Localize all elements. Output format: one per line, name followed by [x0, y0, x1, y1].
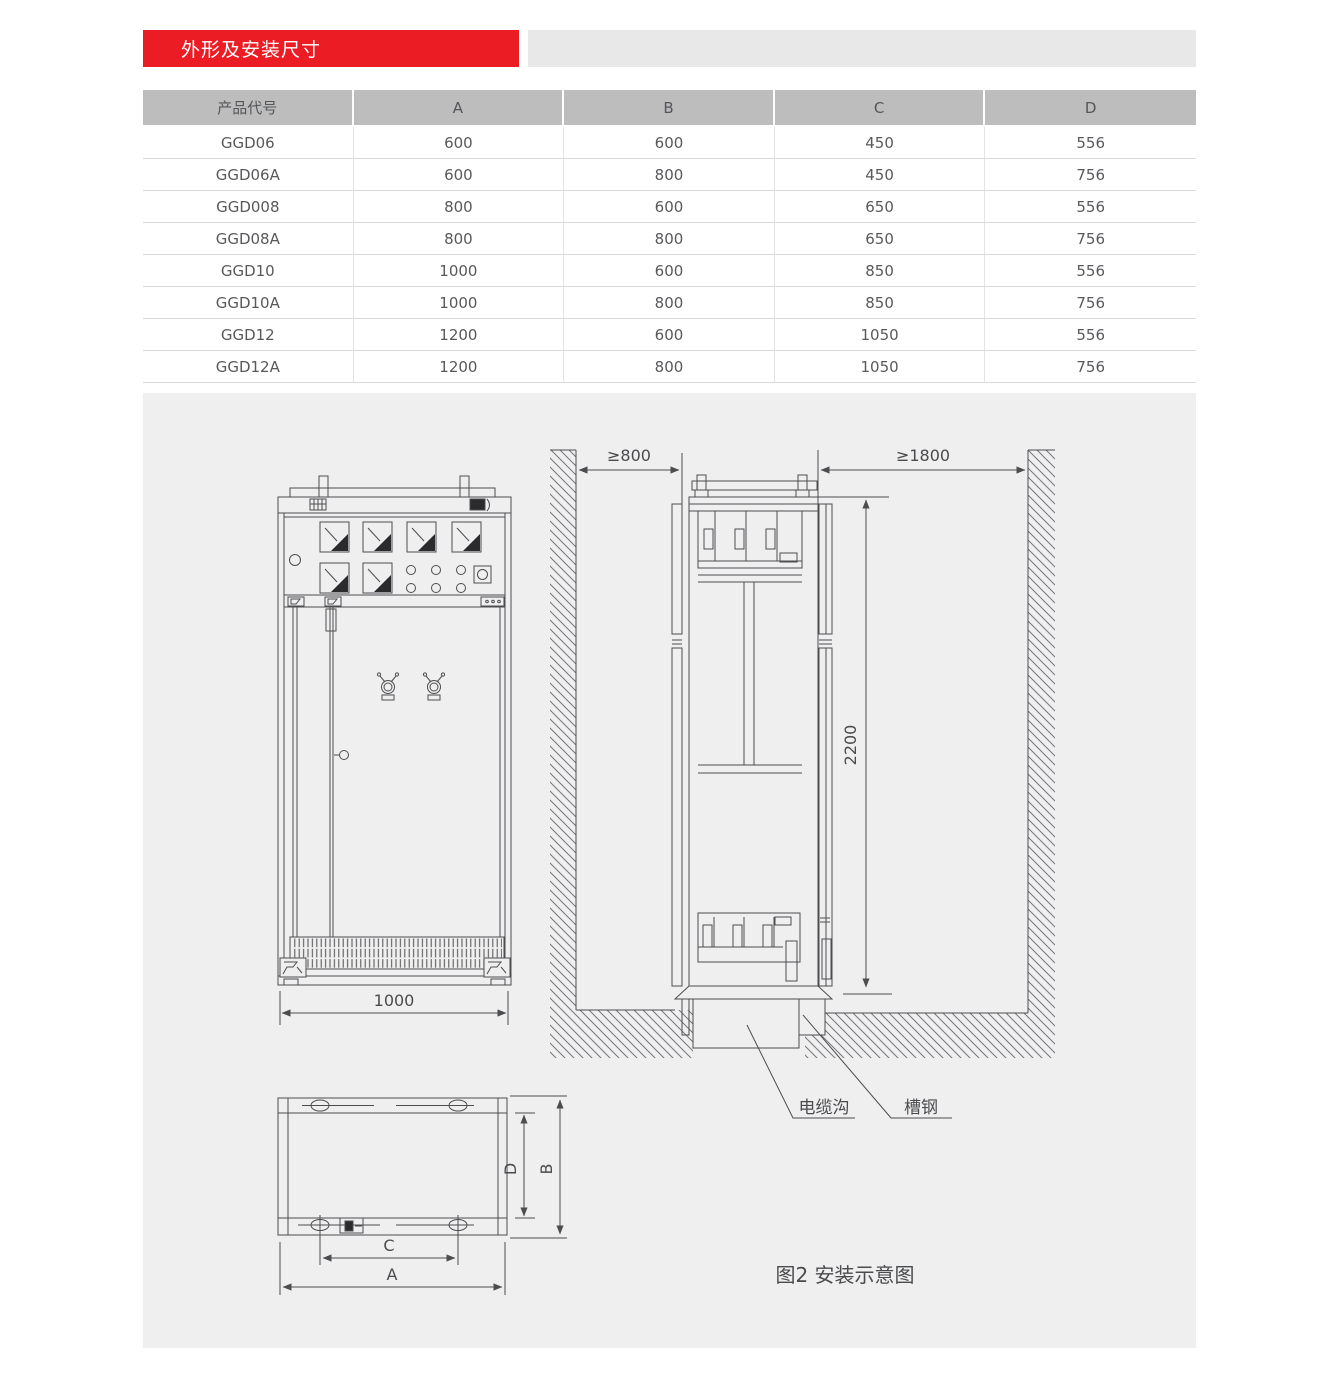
rear-door-edge: [819, 504, 832, 986]
column-header: B: [564, 90, 775, 127]
table-row: GGD12A12008001050756: [143, 351, 1196, 383]
wall-left: [550, 450, 576, 1010]
instrument-panel: [284, 517, 505, 595]
busbar-compartment-bottom: [698, 913, 831, 981]
figure-caption: 图2 安装示意图: [775, 1263, 914, 1287]
label-cable-trench: 电缆沟: [799, 1098, 850, 1118]
wall-right: [1028, 450, 1055, 1013]
plan-view: D B C A: [278, 1096, 567, 1295]
dimension-800: ≥800: [579, 446, 682, 504]
dimension-c: C: [320, 1215, 458, 1265]
column-header: D: [985, 90, 1196, 127]
push-button: [474, 566, 491, 583]
table-row: GGD08A800800650756: [143, 223, 1196, 255]
table-row: GGD06A600800450756: [143, 159, 1196, 191]
label-clearance-right: ≥1800: [896, 446, 950, 465]
dimension-1800: ≥1800: [818, 446, 1025, 497]
installation-diagram: 1000: [143, 393, 1196, 1348]
label-dim-b: B: [537, 1164, 556, 1175]
meter: [452, 522, 481, 552]
meter: [407, 522, 436, 552]
door-vent-symbol: [423, 673, 444, 700]
ventilation-grille: [290, 937, 504, 969]
panel-hole: [290, 555, 301, 566]
meter: [320, 522, 349, 552]
busbar-compartment-top: [698, 511, 802, 582]
front-view: 1000: [278, 476, 511, 1025]
label-front-width: 1000: [374, 991, 415, 1010]
section-header: 外形及安装尺寸: [143, 30, 1196, 67]
side-view: ≥800 ≥1800: [550, 446, 1055, 1118]
panel-divider-strip: [284, 595, 505, 607]
label-height: 2200: [841, 725, 860, 766]
lifting-bar-front: [290, 476, 495, 497]
mounting-slots: [298, 1100, 474, 1231]
section-title: 外形及安装尺寸: [181, 35, 321, 62]
meter: [363, 522, 392, 552]
column-header: 产品代号: [143, 90, 354, 127]
label-dim-c: C: [383, 1236, 394, 1255]
front-door-edge: [672, 504, 682, 986]
column-header: C: [775, 90, 986, 127]
cable-trench: [693, 999, 799, 1048]
indicator-lights: [407, 566, 466, 593]
dimension-1000: 1000: [280, 991, 508, 1025]
cabinet-door-front: [293, 607, 500, 937]
meter: [320, 563, 349, 593]
cabinet-side: [672, 475, 832, 1035]
label-dim-d: D: [501, 1163, 520, 1175]
meter: [363, 563, 392, 593]
door-vent-symbol: [377, 673, 398, 700]
table-row: GGD1212006001050556: [143, 319, 1196, 351]
door-handle: [334, 751, 349, 760]
label-channel-steel: 槽钢: [904, 1098, 938, 1118]
cabinet-front-outline: [278, 497, 511, 985]
table-row: GGD10A1000800850756: [143, 287, 1196, 319]
dimension-2200: 2200: [818, 497, 892, 994]
label-dim-a: A: [387, 1265, 398, 1284]
dimension-table: 产品代号 A B C D GGD06600600450556 GGD06A600…: [143, 90, 1196, 383]
busbars: [698, 582, 802, 773]
dimension-d: D: [501, 1113, 535, 1218]
corner-foot: [280, 958, 306, 977]
datasheet-page: 外形及安装尺寸 产品代号 A B C D GGD06600600450556 G…: [0, 0, 1317, 1380]
table-row: GGD101000600850556: [143, 255, 1196, 287]
table-row: GGD06600600450556: [143, 127, 1196, 159]
section-title-banner: 外形及安装尺寸: [143, 30, 519, 67]
corner-foot: [484, 958, 510, 977]
table-header: 产品代号 A B C D: [143, 90, 1196, 127]
table-header-row: 产品代号 A B C D: [143, 90, 1196, 127]
label-clearance-left: ≥800: [607, 446, 651, 465]
top-cap-front: [310, 499, 490, 511]
lifting-bar-side: [692, 475, 817, 497]
column-header: A: [354, 90, 565, 127]
table-row: GGD008800600650556: [143, 191, 1196, 223]
header-gray-strip: [528, 30, 1196, 67]
